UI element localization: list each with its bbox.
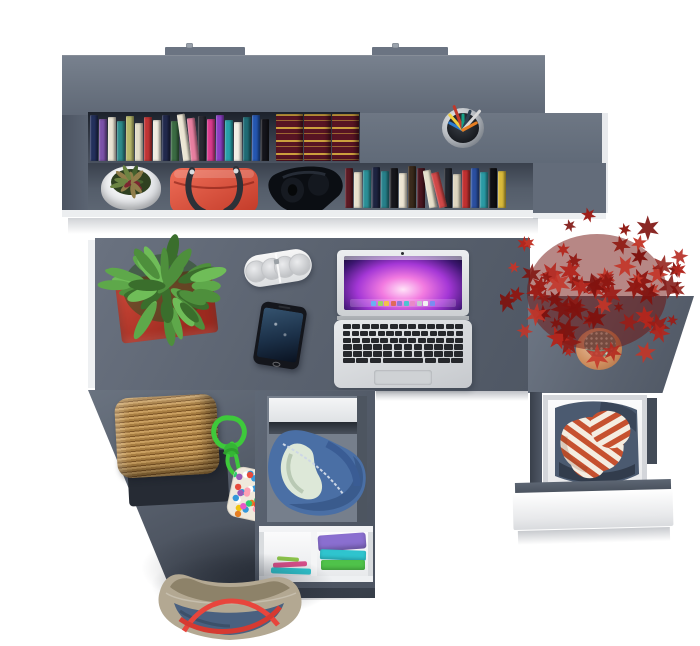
book-spine xyxy=(99,119,107,161)
book-spine xyxy=(126,116,134,161)
book-spine xyxy=(117,121,125,161)
book-spine xyxy=(198,116,206,161)
book-spine xyxy=(372,167,380,208)
book-spine xyxy=(453,174,461,208)
book-spine xyxy=(408,166,416,208)
phone-home-button xyxy=(272,361,281,367)
book-spine xyxy=(390,168,398,208)
book-spine xyxy=(135,123,143,161)
laptop-screen-lid xyxy=(337,250,469,316)
laptop-dock xyxy=(350,299,456,307)
book-spine xyxy=(480,172,488,208)
top-book-row xyxy=(90,112,276,161)
book-spine xyxy=(399,173,407,208)
drawer-clothes xyxy=(541,392,651,494)
maple-foliage xyxy=(500,202,695,388)
antique-book xyxy=(332,114,359,161)
red-handbag xyxy=(168,160,260,216)
book-spine xyxy=(381,171,389,208)
book-spine xyxy=(153,120,161,161)
book-spine xyxy=(363,170,371,208)
phone-screen xyxy=(256,307,303,363)
speaker-button xyxy=(274,259,280,265)
mount-screw-right xyxy=(392,43,399,48)
book-spine xyxy=(243,117,251,161)
book-spine xyxy=(225,120,233,161)
book-spine xyxy=(471,168,479,208)
headphones xyxy=(262,164,350,216)
book-spine xyxy=(354,172,362,208)
laptop-menubar xyxy=(344,256,462,260)
book-spine xyxy=(108,117,116,161)
pen-cup-pens xyxy=(436,92,490,138)
hutch-lower-shelf-recess xyxy=(88,163,533,210)
laptop-deck xyxy=(334,320,472,388)
book-spine xyxy=(162,115,170,161)
book-spine xyxy=(261,119,269,161)
desk-front-shadow xyxy=(376,391,528,401)
duffel-bag xyxy=(261,412,373,524)
laptop-keyboard xyxy=(343,324,463,368)
smartphone xyxy=(252,301,307,370)
book-spine xyxy=(144,117,152,161)
drawer-front xyxy=(513,489,674,530)
laptop-trackpad xyxy=(374,370,432,385)
book-spine xyxy=(207,119,215,161)
book-spine xyxy=(252,115,260,161)
antique-book xyxy=(304,114,331,161)
laptop-display xyxy=(344,256,462,310)
book-spine xyxy=(216,115,224,161)
antique-book xyxy=(276,114,303,161)
desk-set-top-view xyxy=(0,0,700,646)
hutch-top-shelf-recess xyxy=(88,112,360,163)
hutch-bottom-edge xyxy=(62,210,533,217)
tote-bag xyxy=(146,563,314,646)
mount-screw-left xyxy=(186,43,193,48)
desk-plant-foliage xyxy=(90,226,240,348)
hutch-left-side xyxy=(62,115,88,213)
laptop-camera xyxy=(401,252,404,255)
phone-earpiece xyxy=(278,305,290,309)
ornate-books xyxy=(276,114,360,161)
book-spine xyxy=(345,168,353,208)
drawer-front-shadow xyxy=(518,527,670,545)
succulent-foliage xyxy=(101,163,161,207)
book-spine xyxy=(90,115,98,161)
rope-loop xyxy=(214,418,245,447)
book-spine xyxy=(489,168,497,208)
book-spine xyxy=(234,122,242,161)
book-spine xyxy=(462,170,470,208)
